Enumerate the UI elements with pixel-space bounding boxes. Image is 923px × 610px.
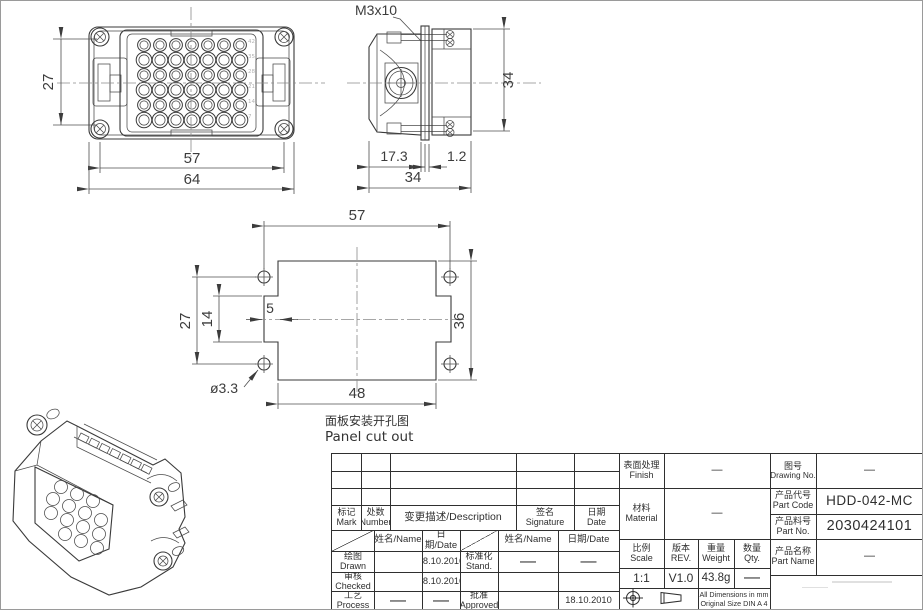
cutout-hole-dia-callout: ø3.3 <box>210 370 258 396</box>
screw-spec-label: M3x10 <box>355 2 397 18</box>
units-note: All Dimensions in mm Original Size DIN A… <box>698 588 770 610</box>
svg-text:14: 14 <box>248 99 255 105</box>
projection-symbol-icon <box>619 588 689 608</box>
row-stand-label: 标准化 Stand. <box>460 551 498 572</box>
approved-date: 18.10.2010 <box>558 591 619 610</box>
isometric-contact-strip <box>74 424 157 474</box>
cutout-dim-5: 5 <box>246 300 298 320</box>
stand-name: — <box>498 551 558 572</box>
subheader-name-1: 姓名/Name <box>374 530 422 551</box>
svg-text:5: 5 <box>266 300 274 316</box>
svg-text:28: 28 <box>248 69 255 75</box>
svg-text:57: 57 <box>349 207 366 224</box>
isometric-pin-recess <box>35 467 113 561</box>
isometric-screws <box>27 407 185 570</box>
part-code-label: 产品代号 Part Code <box>770 488 816 514</box>
qty-value: — <box>734 568 770 588</box>
drawn-date: 18.10.2010 <box>422 551 460 572</box>
front-latch-left <box>93 58 127 106</box>
svg-text:7: 7 <box>248 114 252 120</box>
cutout-dim-14: 14 <box>199 296 262 342</box>
subheader-date-2: 日期/Date <box>558 530 619 551</box>
process-date: — <box>422 591 460 610</box>
subheader-name-2: 姓名/Name <box>498 530 558 551</box>
side-dim-height-34: 34 <box>473 29 517 131</box>
svg-text:27: 27 <box>40 74 57 91</box>
cutout-dim-48: 48 <box>278 383 436 409</box>
title-block: 标记 Mark 处数 Number 变更描述/Description 签名 Si… <box>331 453 923 610</box>
svg-text:ø3.3: ø3.3 <box>210 380 238 396</box>
checked-date: 18.10.2010 <box>422 572 460 591</box>
part-no-value: 2030424101 <box>816 514 923 539</box>
weight-label: 重量 Weight <box>698 539 734 568</box>
svg-text:34: 34 <box>405 169 422 186</box>
material-label: 材料 Material <box>619 488 664 539</box>
scale-label: 比例 Scale <box>619 539 664 568</box>
col-header-date: 日期 Date <box>574 505 619 530</box>
front-latch-right <box>256 58 290 106</box>
watermark-smudge <box>832 581 892 583</box>
svg-text:27: 27 <box>177 313 194 330</box>
isometric-view <box>13 407 189 595</box>
drawing-no-label: 图号 Drawing No. <box>770 454 816 488</box>
part-name-label: 产品名称 Part Name <box>770 539 816 575</box>
cutout-dim-27: 27 <box>177 277 256 364</box>
rev-value: V1.0 <box>664 568 698 588</box>
front-view: 42 35 28 21 14 7 27 57 64 <box>40 7 325 194</box>
finish-label: 表面处理 Finish <box>619 454 664 488</box>
material-value: — <box>664 488 770 539</box>
side-view: M3x10 <box>347 2 541 193</box>
side-dim-1-2: 1.2 <box>411 144 467 172</box>
svg-text:64: 64 <box>184 171 201 188</box>
watermark-smudge <box>802 587 828 588</box>
diagonal-cell <box>460 530 498 551</box>
projection-symbols <box>619 588 698 610</box>
col-header-description: 变更描述/Description <box>390 505 516 530</box>
col-header-mark: 标记 Mark <box>332 505 361 530</box>
weight-value: 43.8g <box>698 568 734 588</box>
drawing-no-value: — <box>816 454 923 488</box>
row-checked-label: 审核 Checked <box>332 572 374 591</box>
svg-text:17.3: 17.3 <box>380 148 407 164</box>
svg-text:21: 21 <box>248 84 255 90</box>
screw-leader-line <box>393 17 421 41</box>
svg-text:48: 48 <box>349 385 366 402</box>
front-dim-57: 57 <box>100 142 284 173</box>
part-no-label: 产品料号 Part No. <box>770 514 816 539</box>
panel-cutout-view: 57 27 14 5 ø3.3 48 <box>177 207 477 445</box>
col-header-signature: 签名 Signature <box>516 505 574 530</box>
drawing-sheet: 42 35 28 21 14 7 27 57 64 M3x10 <box>0 0 923 610</box>
rev-label: 版本 REV. <box>664 539 698 568</box>
finish-value: — <box>664 454 770 488</box>
row-approved-label: 批准 Approved <box>460 591 498 610</box>
svg-text:36: 36 <box>451 313 468 330</box>
qty-label: 数量 Qty. <box>734 539 770 568</box>
scale-value: 1:1 <box>619 568 664 588</box>
diagonal-cell <box>332 530 374 551</box>
svg-text:57: 57 <box>184 150 201 167</box>
part-code-value: HDD-042-MC <box>816 488 923 514</box>
stand-date: — <box>558 551 619 572</box>
svg-text:1.2: 1.2 <box>447 148 467 164</box>
isometric-side-tabs <box>147 474 189 543</box>
subheader-date-1: 日期/Date <box>422 530 460 551</box>
cutout-caption-zh: 面板安装开孔图 <box>325 413 409 428</box>
svg-text:14: 14 <box>199 311 216 328</box>
svg-text:42: 42 <box>248 39 255 45</box>
row-drawn-label: 绘图 Drawn <box>332 551 374 572</box>
front-pin-numbers: 42 35 28 21 14 7 <box>248 39 255 120</box>
svg-text:34: 34 <box>500 72 517 89</box>
process-name: — <box>374 591 422 610</box>
cutout-caption-en: Panel cut out <box>325 429 413 445</box>
col-header-number: 处数 Number <box>361 505 390 530</box>
row-process-label: 工艺 Process <box>332 591 374 610</box>
svg-text:35: 35 <box>248 54 255 60</box>
part-name-value: — <box>816 539 923 575</box>
